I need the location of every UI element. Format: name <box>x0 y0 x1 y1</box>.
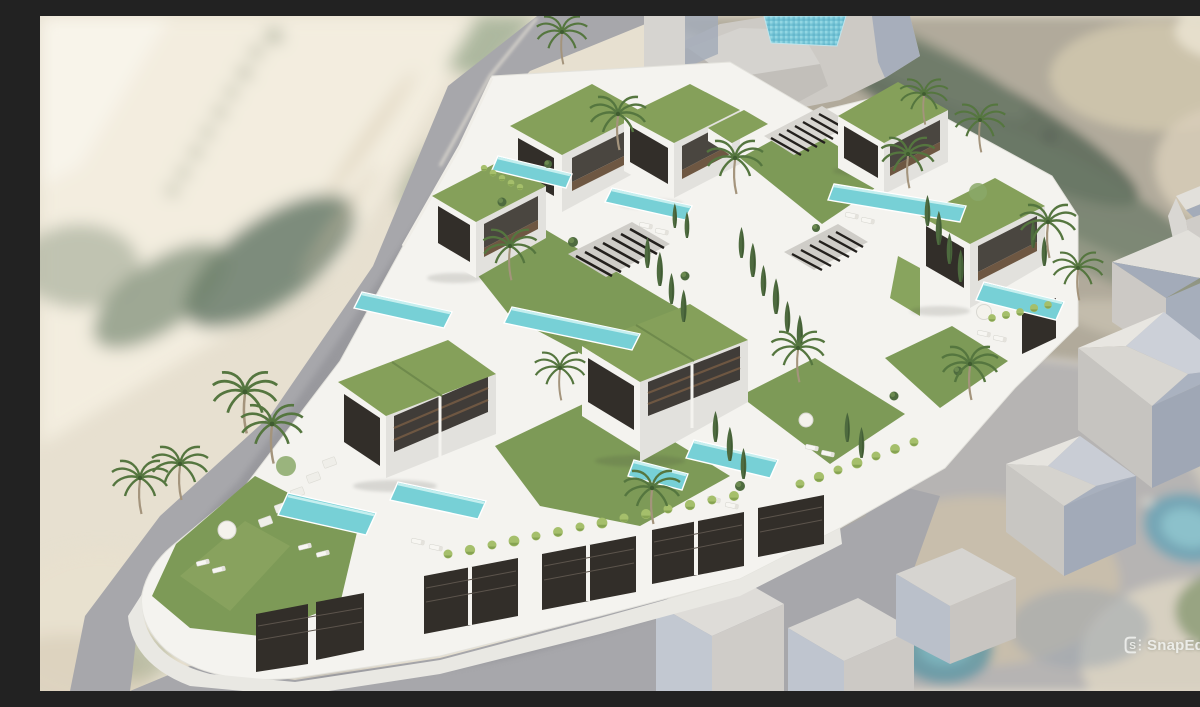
garden-tree <box>969 183 987 201</box>
architectural-render-image: S SnapEdit <box>40 16 1200 691</box>
watermark-label: SnapEdit <box>1147 637 1200 654</box>
snapedit-logo-icon: S <box>1124 636 1142 654</box>
parasol <box>799 413 813 427</box>
render-scene <box>40 16 1200 691</box>
snapedit-watermark: S SnapEdit <box>1124 634 1200 656</box>
garden-tree <box>276 456 296 476</box>
rooftop-pool <box>764 16 846 46</box>
parasol <box>218 521 236 539</box>
svg-text:S: S <box>1129 641 1136 652</box>
